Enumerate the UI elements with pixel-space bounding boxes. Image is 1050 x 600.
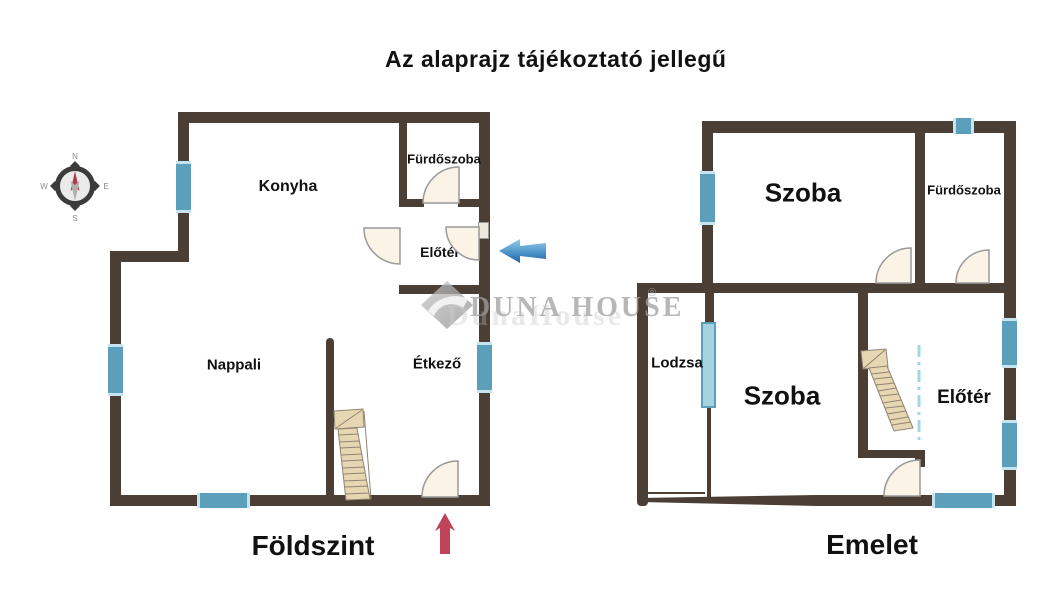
wall-segment	[637, 283, 648, 506]
wall-segment	[399, 199, 424, 207]
entrance-door-jamb	[478, 222, 489, 239]
wall-segment	[705, 283, 714, 324]
lodzsa-bottom-edge	[640, 495, 817, 506]
window	[108, 344, 123, 396]
door-swing-szoba-e	[876, 248, 911, 283]
window	[1002, 318, 1017, 368]
room-label-eloter-e: Előtér	[937, 387, 991, 409]
room-label-lodzsa: Lodzsa	[651, 355, 703, 372]
compass-east-label: E	[103, 182, 108, 191]
window	[1002, 420, 1017, 470]
watermark-ghost-text: DunaHouse	[447, 299, 624, 332]
door-swing-furdoszoba-g	[423, 167, 459, 203]
page-title: Az alaprajz tájékoztató jellegű	[385, 46, 726, 73]
room-label-etkezo: Étkező	[413, 356, 461, 373]
room-label-szoba-also: Szoba	[744, 381, 821, 412]
room-label-furdoszoba: Fürdőszoba	[407, 152, 481, 167]
wall-segment	[915, 450, 925, 467]
compass-south-label: S	[72, 214, 77, 223]
wall-segment	[648, 492, 705, 494]
wall-segment	[858, 293, 868, 458]
window	[197, 493, 250, 508]
wall-segment	[110, 251, 189, 262]
wall-segment	[637, 283, 1016, 293]
room-label-furdoszoba-e: Fürdőszoba	[927, 183, 1001, 198]
watermark-brand-text: DUNA HOUSE	[470, 292, 684, 323]
wall-segment	[479, 112, 490, 506]
wall-segment	[178, 112, 490, 123]
room-label-nappali: Nappali	[207, 357, 261, 374]
room-label-eloter: Előtér	[420, 244, 460, 260]
wall-segment	[399, 118, 407, 207]
entrance-arrow-red	[435, 513, 455, 554]
floor-title-emelet: Emelet	[826, 529, 918, 561]
window	[700, 171, 715, 225]
window	[477, 342, 492, 393]
entrance-arrow-blue	[499, 239, 546, 263]
window	[953, 118, 974, 134]
wall-segment	[915, 121, 925, 293]
wall-segment	[458, 199, 490, 207]
door-swing-etkezo	[422, 461, 458, 497]
window	[932, 493, 995, 508]
compass-north-label: N	[72, 152, 78, 161]
floorplan-canvas: Az alaprajz tájékoztató jellegű Konyha F…	[0, 0, 1050, 600]
door-swing-konyha	[364, 228, 400, 264]
room-label-konyha: Konyha	[259, 178, 318, 196]
door-swing-furdoszoba-e	[956, 250, 989, 283]
window-lodzsa	[701, 322, 716, 408]
compass-rose: N E S W	[40, 152, 108, 223]
wall-segment	[326, 338, 334, 506]
room-label-szoba-felso: Szoba	[765, 178, 842, 209]
wall-segment	[707, 406, 711, 497]
compass-west-label: W	[40, 182, 48, 191]
wall-segment	[110, 495, 490, 506]
wall-segment	[399, 285, 490, 294]
staircase-upper	[861, 349, 913, 431]
staircase-ground	[334, 409, 371, 500]
floor-title-foldszint: Földszint	[252, 530, 375, 562]
window	[176, 161, 191, 213]
